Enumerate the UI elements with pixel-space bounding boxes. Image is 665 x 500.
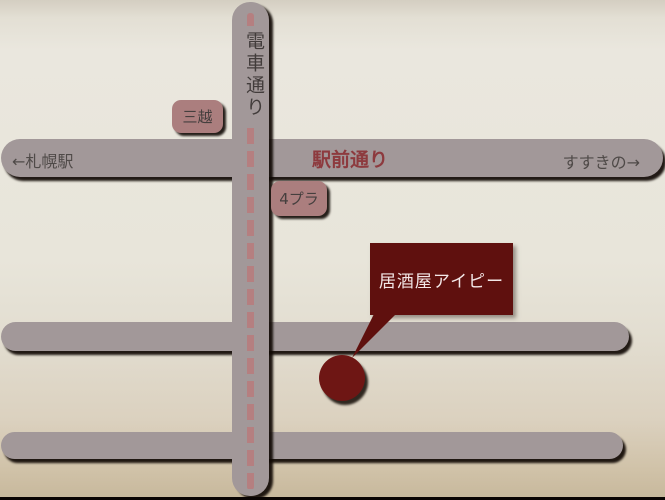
ekimae-street-label: 駅前通り [270,145,430,172]
four-pla-label: 4プラ [279,188,319,209]
mitsukoshi-box: 三越 [172,100,223,133]
venue-callout-label: 居酒屋アイピー [379,267,504,292]
to-sapporo-label: ←札幌駅 [12,148,73,172]
four-pla-box: 4プラ [271,181,327,216]
mitsukoshi-label: 三越 [182,106,212,127]
venue-callout: 居酒屋アイピー [370,243,513,315]
callout-pointer-icon [348,312,398,362]
tram-street-label: 電車通り [233,26,268,124]
access-map: 電車通り 三越 4プラ ←札幌駅 駅前通り すすきの→ 居酒屋アイピー [0,0,665,500]
cross-street-road-1 [1,322,629,351]
cross-street-road-2 [1,432,623,459]
to-susukino-label: すすきの→ [560,149,640,173]
venue-marker [319,355,365,401]
